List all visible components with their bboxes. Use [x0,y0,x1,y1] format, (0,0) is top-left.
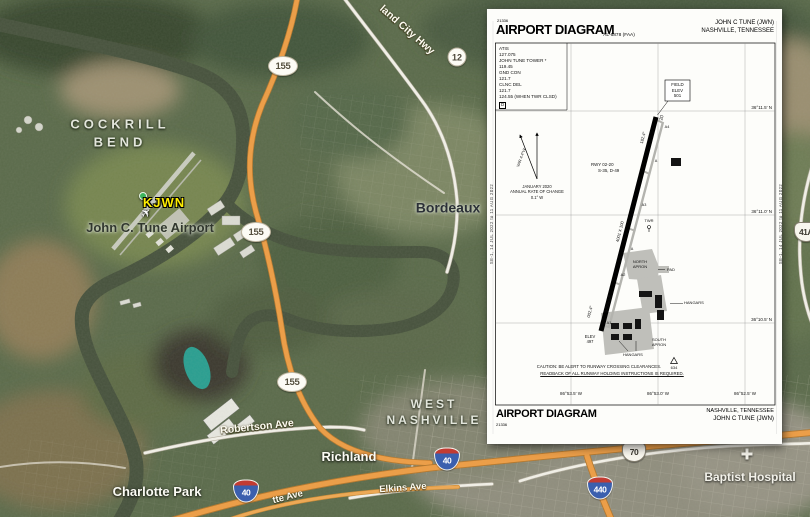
shield-us41a: 41A [794,222,810,242]
rwy20-number: 20 [659,115,666,122]
diagram-al-number: AL-6878 (FAA) [587,33,651,38]
shield-tn12: 12 [448,48,467,67]
label-richland: Richland [322,448,377,466]
label-cockrill-bend: COCKRILLBEND [70,115,169,150]
twy-a2: A2 [621,273,626,278]
satellite-map-view[interactable]: ✈ COCKRILLBENDWESTNASHVILLEBordeauxJohn … [0,0,810,517]
effective-dates-right: SE-1, 14 JUL 2022 to 11 AUG 2022 [778,184,783,264]
caution-line1: CAUTION: BE ALERT TO RUNWAY CROSSING CLE… [537,364,661,370]
north-apron: NORTHAPRON [633,259,647,269]
lat-36-11-0: 36°11.0' N [751,209,772,215]
rwy-slope: 0.75% UP [603,294,612,313]
twy-a-upper: A [655,159,658,164]
diagram-city: NASHVILLE, TENNESSEE [701,28,774,34]
label-kjwn[interactable]: KJWN [143,194,185,212]
shield-i440: 440 [587,477,613,500]
label-robertson-ave: Robertson Ave [220,416,295,438]
diagram-annotation-layer: ATIS127.075JOHN TUNE TOWER *119.45GND CO… [487,9,782,444]
label-bordeaux: Bordeaux [416,199,481,218]
rwy-dimensions: 4001 X 100 [615,221,625,243]
comm-freqs: ATIS127.075JOHN TUNE TOWER *119.45GND CO… [499,46,557,100]
rwy02-elev: ELEV497 [585,334,595,345]
label-charlotte-park: Charlotte Park [113,483,202,501]
caution-line2: READBACK OF ALL RUNWAY HOLDING INSTRUCTI… [540,371,684,377]
lat-36-10-5: 36°10.5' N [751,317,772,323]
rwy-data: RWY 02-20S-35, D-49 [591,162,619,173]
rwy20-heading: 182.4° [639,131,647,144]
lon-86-52-5: 86°52.5' W [734,391,756,397]
label-elkins-ave: Elkins Ave [379,481,427,497]
shield-tn155-north: 155 [268,56,298,76]
diagram-footer-doc-number: 21336 [496,422,507,427]
mag-var-note: JANUARY 2020ANNUAL RATE OF CHANGE0.1° W [510,184,564,200]
label-ashland-city-hwy: land City Hwy [376,2,437,58]
south-apron: SOUTHAPRON [652,337,666,347]
diagram-footer-city: NASHVILLE, TENNESSEE [706,408,774,414]
shield-i40-east: 40 [434,448,460,471]
diagram-footer-title: AIRPORT DIAGRAM [496,408,597,420]
label-charlotte-ave: tte Ave [271,488,304,508]
shield-i40-west: 40 [233,480,259,503]
hangars-south: HANGARS [623,352,643,357]
label-john-c-tune-airport[interactable]: John C. Tune Airport [86,219,214,237]
rwy02-heading: 002.4° [586,305,594,318]
twy-a4: A4 [665,125,670,130]
shield-tn155-south: 155 [277,372,307,392]
effective-dates-left: SE-1, 14 JUL 2022 to 11 AUG 2022 [489,184,494,264]
var-arrow-label: VAR 4.4°W [515,148,526,168]
shield-us70: 70 [622,442,646,462]
hangars-east: HANGARS [684,300,704,305]
lon-86-53-5: 86°53.5' W [560,391,582,397]
shield-tn155-mid: 155 [241,222,271,242]
diagram-footer-airport: JOHN C TUNE (JWN) [713,415,774,422]
clnc-d-box: D [499,102,506,109]
twy-a-lower: A [631,247,634,252]
label-baptist-hospital[interactable]: Baptist Hospital [704,469,795,485]
pad-label: PAD [667,267,675,272]
obstruction-634: 634 [671,365,678,370]
airport-diagram-sheet[interactable]: ATIS127.075JOHN TUNE TOWER *119.45GND CO… [487,9,782,444]
field-elev: FIELDELEV501 [671,82,683,99]
twy-a1: A1 [607,321,612,326]
diagram-airport-name: JOHN C TUNE (JWN) [715,20,774,26]
label-west-nashville: WESTNASHVILLE [386,396,481,428]
hospital-cross-icon [742,449,753,460]
lat-36-11-5: 36°11.5' N [751,105,772,111]
lon-86-53-0: 86°53.0' W [647,391,669,397]
twy-a3: A3 [642,203,647,208]
twr-label: TWR [644,218,653,223]
